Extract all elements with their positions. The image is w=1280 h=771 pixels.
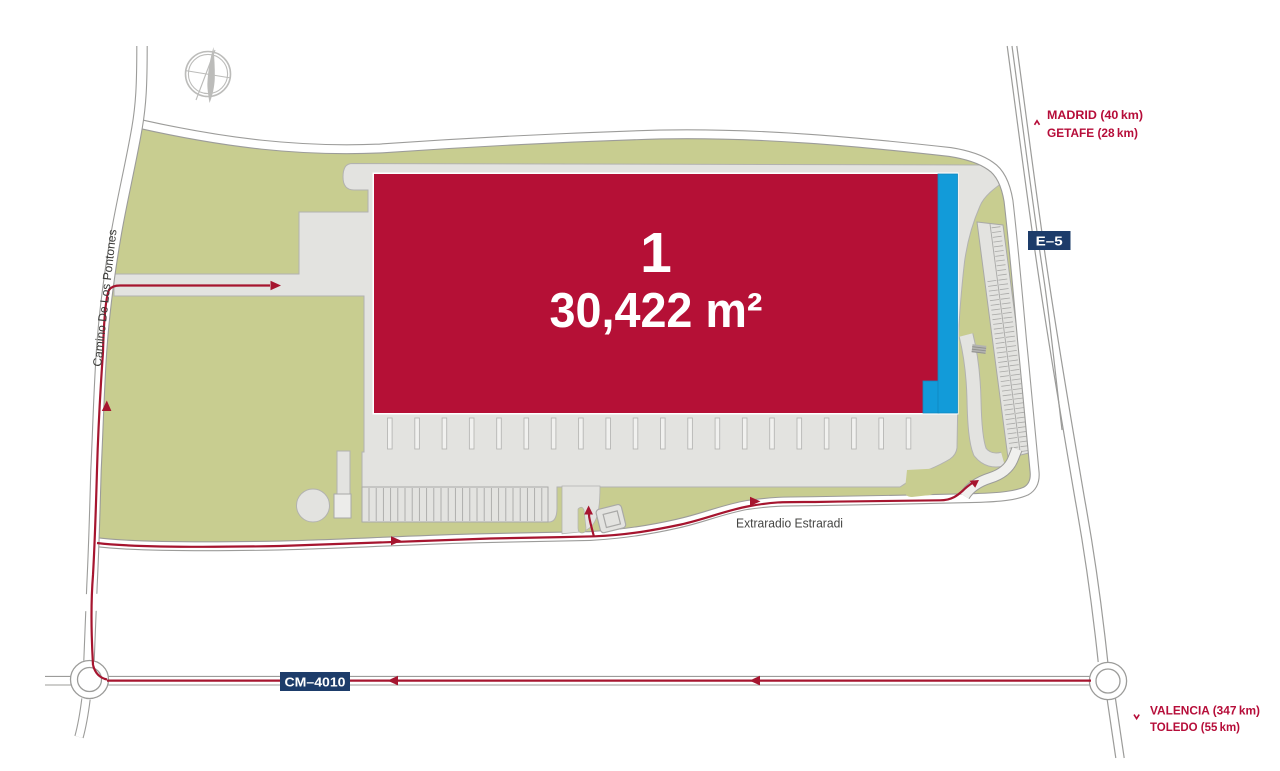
- svg-text:Extraradio Estraradi: Extraradio Estraradi: [736, 517, 843, 531]
- svg-text:E–5: E–5: [1036, 235, 1063, 249]
- svg-text:CM–4010: CM–4010: [285, 675, 346, 690]
- svg-text:1: 1: [640, 221, 672, 285]
- svg-text:MADRID (40 km): MADRID (40 km): [1047, 108, 1143, 122]
- svg-text:30,422 m²: 30,422 m²: [550, 284, 763, 338]
- svg-text:GETAFE (28 km): GETAFE (28 km): [1047, 126, 1138, 140]
- svg-text:TOLEDO (55 km): TOLEDO (55 km): [1150, 720, 1240, 734]
- svg-text:VALENCIA (347 km): VALENCIA (347 km): [1150, 704, 1260, 718]
